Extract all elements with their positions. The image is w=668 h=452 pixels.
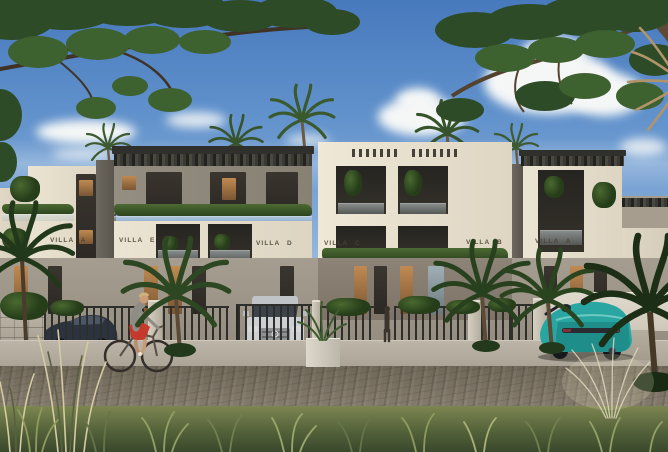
tree-canopy-right [435,0,668,130]
villa-street-render: VILLA A VILLA E VILLA D VILLA C VILLA B … [0,0,668,452]
framing-trees [0,0,668,452]
tree-canopy-left [0,0,360,182]
